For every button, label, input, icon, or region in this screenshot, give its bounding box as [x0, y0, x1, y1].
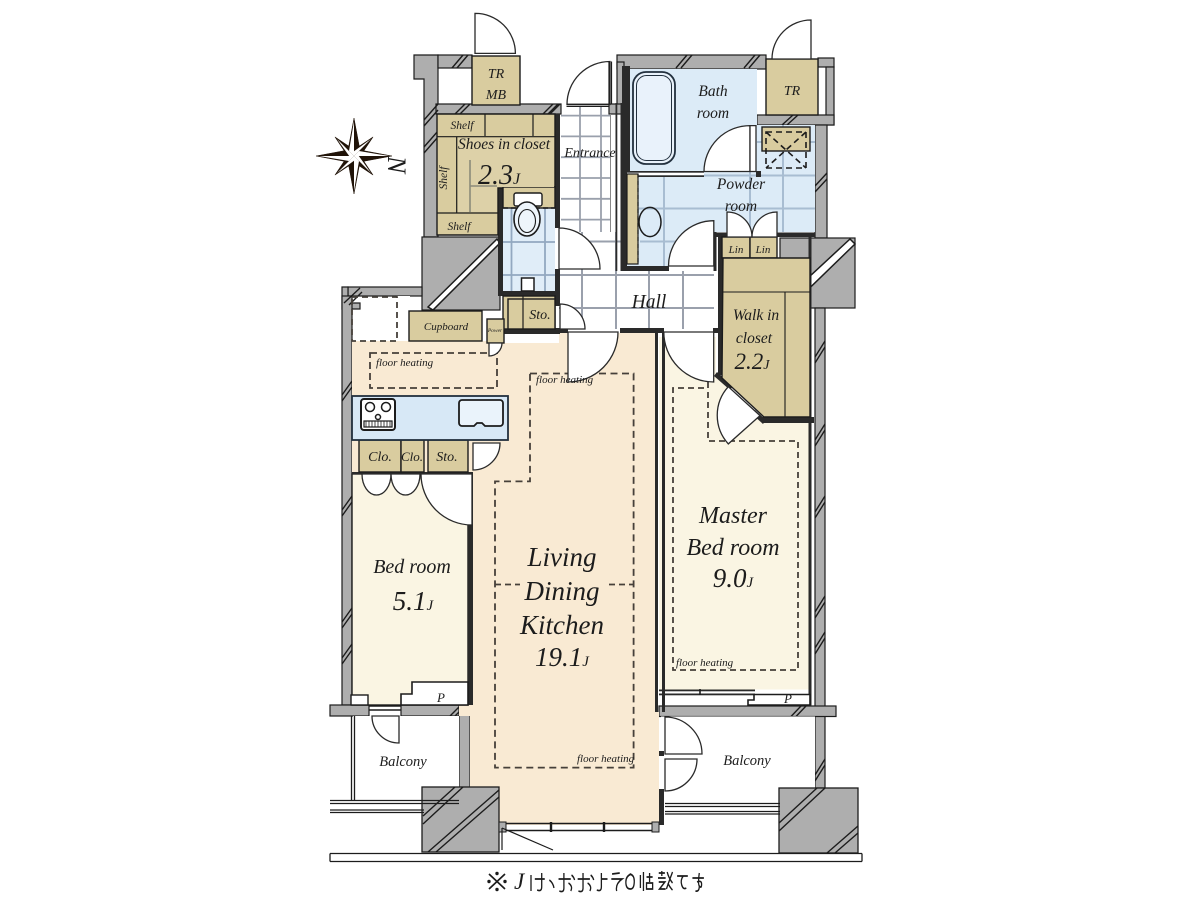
svg-text:Balcony: Balcony — [723, 753, 771, 769]
svg-text:Sto.: Sto. — [436, 450, 457, 465]
svg-text:Bath: Bath — [698, 83, 728, 100]
svg-text:Clo.: Clo. — [368, 450, 392, 465]
svg-text:Clo.: Clo. — [401, 449, 423, 464]
svg-text:Hall: Hall — [631, 292, 667, 313]
svg-text:MB: MB — [485, 88, 507, 103]
svg-text:floor heating: floor heating — [676, 657, 734, 669]
svg-text:Sto.: Sto. — [529, 308, 550, 323]
svg-text:N: N — [382, 155, 411, 175]
svg-text:Powder: Powder — [716, 176, 766, 193]
svg-text:Balcony: Balcony — [379, 754, 427, 770]
svg-text:Shelf: Shelf — [451, 120, 476, 132]
svg-text:Bed room: Bed room — [686, 535, 779, 561]
svg-text:Walk in: Walk in — [733, 307, 780, 324]
svg-text:room: room — [725, 198, 757, 215]
svg-text:floor heating: floor heating — [536, 374, 594, 386]
svg-text:J: J — [514, 869, 526, 894]
svg-text:Shelf: Shelf — [438, 165, 450, 190]
svg-text:Dining: Dining — [523, 576, 599, 606]
svg-text:19.1J: 19.1J — [535, 642, 590, 672]
svg-text:Kitchen: Kitchen — [519, 610, 604, 640]
svg-text:floor heating: floor heating — [577, 753, 635, 765]
svg-text:P: P — [783, 691, 792, 706]
svg-text:TR: TR — [488, 67, 505, 82]
svg-text:Master: Master — [698, 503, 768, 529]
svg-text:Living: Living — [526, 542, 596, 572]
svg-text:Lin: Lin — [755, 244, 771, 256]
svg-text:Bed room: Bed room — [373, 556, 451, 578]
svg-text:Shoes in closet: Shoes in closet — [458, 136, 551, 153]
svg-text:Lin: Lin — [728, 244, 744, 256]
svg-text:Cupboard: Cupboard — [424, 321, 469, 333]
svg-text:Entrance: Entrance — [563, 146, 615, 161]
svg-text:Shelf: Shelf — [448, 221, 473, 233]
svg-text:Power: Power — [487, 328, 503, 334]
svg-text:room: room — [697, 105, 729, 122]
svg-text:floor heating: floor heating — [376, 357, 434, 369]
svg-text:TR: TR — [784, 84, 801, 99]
svg-text:P: P — [436, 690, 445, 705]
svg-text:closet: closet — [736, 330, 773, 347]
